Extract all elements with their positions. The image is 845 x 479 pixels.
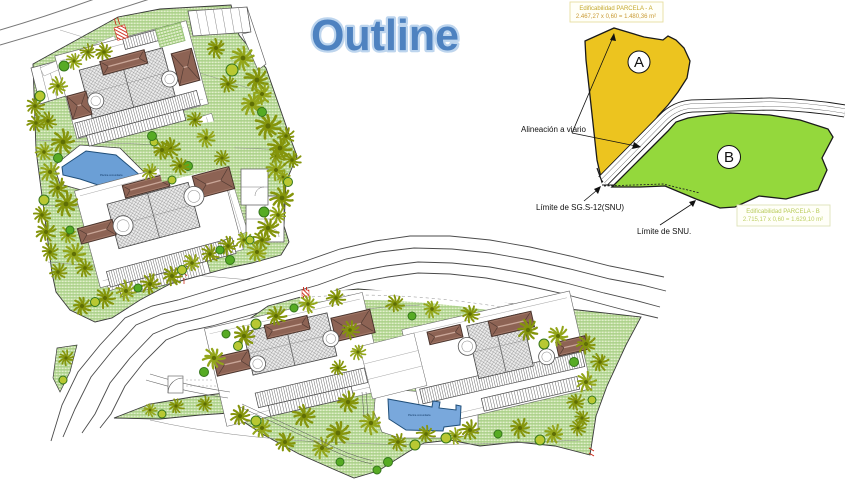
svg-text:Límite de SG.S-12(SNU): Límite de SG.S-12(SNU) bbox=[536, 203, 624, 212]
svg-text:B: B bbox=[724, 149, 734, 166]
svg-text:Piscina comunitaria: Piscina comunitaria bbox=[408, 413, 431, 417]
svg-text:Límite de SNU.: Límite de SNU. bbox=[637, 227, 691, 236]
svg-text:Alineación a viario: Alineación a viario bbox=[521, 125, 586, 134]
svg-text:Outline: Outline bbox=[311, 11, 459, 60]
svg-text:Edificabilidad PARCELA - A: Edificabilidad PARCELA - A bbox=[579, 6, 652, 12]
svg-text:Edificabilidad PARCELA - B: Edificabilidad PARCELA - B bbox=[746, 209, 820, 215]
svg-text:2.715,17 x 0,60 = 1.629,10 m²: 2.715,17 x 0,60 = 1.629,10 m² bbox=[743, 217, 823, 223]
svg-text:2.467,27 x 0,60 = 1.480,36 m²: 2.467,27 x 0,60 = 1.480,36 m² bbox=[576, 14, 656, 20]
svg-text:Piscina comunitaria: Piscina comunitaria bbox=[100, 173, 123, 177]
svg-text:A: A bbox=[634, 54, 644, 71]
